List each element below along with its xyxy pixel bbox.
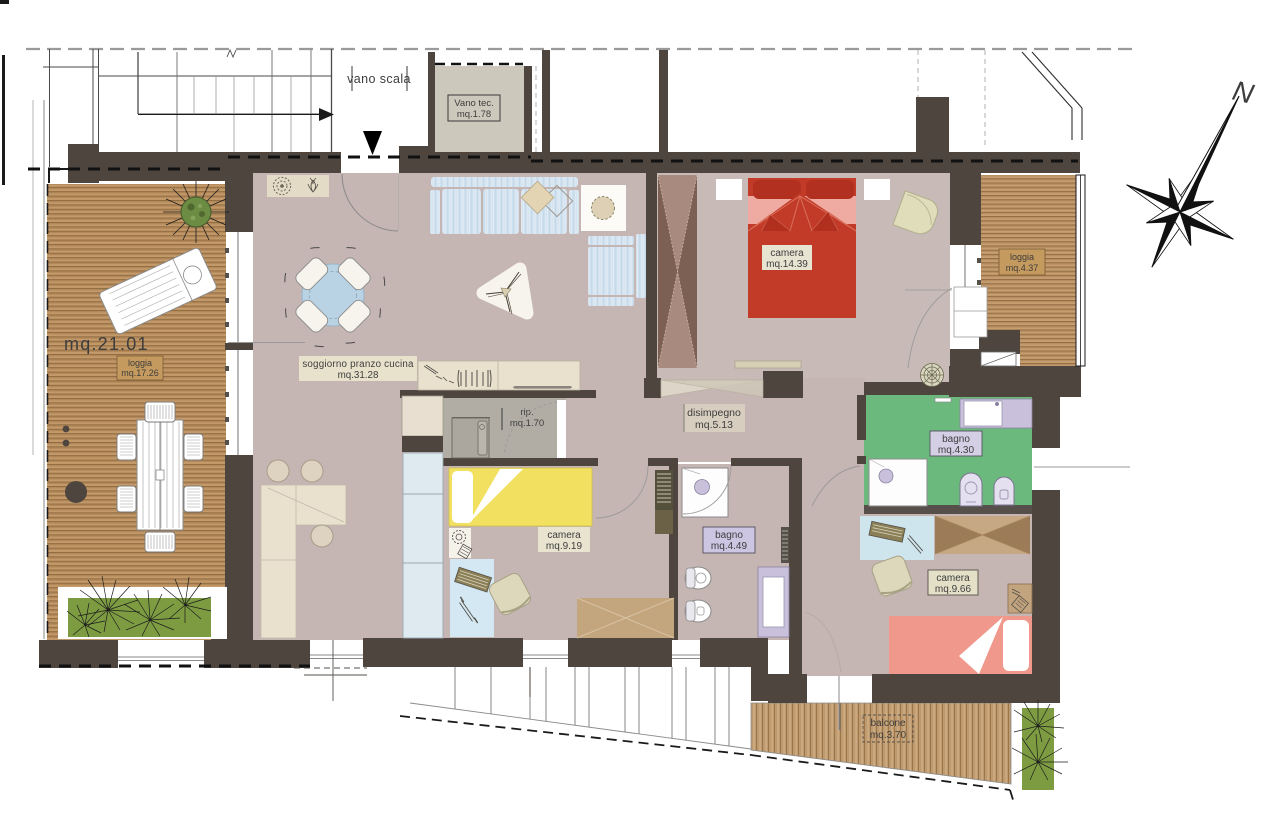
svg-text:mq.21.01: mq.21.01 bbox=[64, 334, 149, 354]
svg-text:mq.9.19: mq.9.19 bbox=[546, 541, 583, 552]
svg-text:loggia: loggia bbox=[128, 358, 152, 368]
svg-text:bagno: bagno bbox=[942, 434, 970, 445]
svg-text:Vano tec.: Vano tec. bbox=[454, 98, 493, 109]
svg-text:vano scala: vano scala bbox=[347, 72, 411, 86]
svg-text:camera: camera bbox=[547, 530, 581, 541]
svg-text:camera: camera bbox=[770, 248, 804, 259]
svg-text:mq.9.66: mq.9.66 bbox=[935, 584, 972, 595]
svg-text:bagno: bagno bbox=[715, 530, 743, 541]
svg-text:mq.3.70: mq.3.70 bbox=[870, 730, 907, 741]
svg-text:mq.4.37: mq.4.37 bbox=[1006, 263, 1039, 273]
svg-text:balcone: balcone bbox=[870, 718, 905, 729]
svg-text:mq.4.30: mq.4.30 bbox=[938, 445, 975, 456]
svg-text:disimpegno: disimpegno bbox=[687, 407, 741, 419]
svg-text:mq.14.39: mq.14.39 bbox=[766, 259, 808, 270]
svg-text:mq.31.28: mq.31.28 bbox=[338, 370, 379, 381]
svg-text:loggia: loggia bbox=[1010, 252, 1034, 262]
svg-text:mq.5.13: mq.5.13 bbox=[695, 419, 733, 431]
svg-text:mq.4.49: mq.4.49 bbox=[711, 541, 748, 552]
svg-text:camera: camera bbox=[936, 573, 970, 584]
svg-text:soggiorno pranzo cucina: soggiorno pranzo cucina bbox=[302, 359, 414, 370]
svg-text:mq.1.70: mq.1.70 bbox=[510, 418, 544, 429]
svg-text:mq.17.26: mq.17.26 bbox=[121, 368, 159, 378]
svg-text:mq.1.78: mq.1.78 bbox=[457, 109, 491, 120]
svg-text:rip.: rip. bbox=[520, 407, 533, 418]
